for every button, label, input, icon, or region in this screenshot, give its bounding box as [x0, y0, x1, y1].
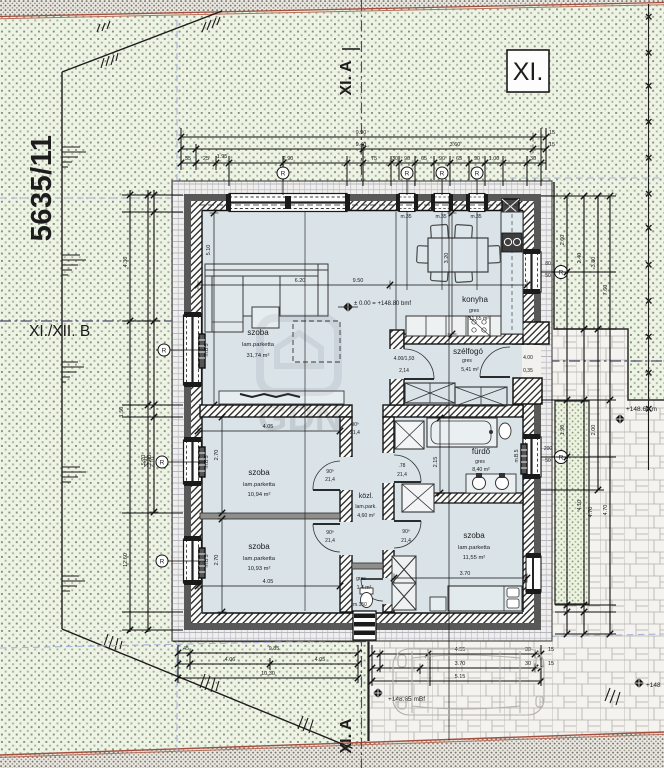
svg-text:3.80: 3.80 [591, 257, 597, 268]
svg-text:+148.60 m: +148.60 m [626, 406, 657, 413]
svg-text:lam.park.: lam.park. [355, 504, 376, 510]
svg-text:lam.parketta: lam.parketta [458, 545, 491, 551]
svg-text:90º: 90º [326, 530, 334, 536]
svg-text:2.15: 2.15 [433, 457, 439, 468]
svg-text:12.60: 12.60 [123, 553, 129, 567]
svg-text:15: 15 [548, 647, 554, 653]
svg-text:21,4: 21,4 [397, 472, 407, 478]
svg-text:30: 30 [530, 156, 536, 162]
svg-text:8,40 m²: 8,40 m² [472, 467, 490, 473]
svg-text:3.70: 3.70 [455, 661, 466, 667]
svg-text:4.55: 4.55 [455, 647, 466, 653]
svg-text:szoba: szoba [247, 328, 269, 337]
svg-text:25: 25 [203, 156, 209, 162]
svg-text:200: 200 [544, 446, 553, 452]
svg-text:5,41 m²: 5,41 m² [461, 367, 479, 373]
svg-text:31,74 m²: 31,74 m² [247, 353, 270, 359]
svg-text:15: 15 [548, 661, 554, 667]
svg-text:m.B.5: m.B.5 [204, 455, 210, 468]
svg-text:2.90: 2.90 [283, 156, 294, 162]
svg-text:65: 65 [456, 156, 462, 162]
svg-text:90º: 90º [402, 529, 410, 535]
svg-text:R: R [475, 171, 480, 178]
svg-text:m.B.5: m.B.5 [204, 343, 210, 356]
svg-text:R: R [162, 348, 167, 355]
svg-text:gres: gres [469, 308, 479, 314]
svg-text:GDN: GDN [258, 397, 342, 439]
svg-text:9.50: 9.50 [353, 278, 364, 284]
svg-text:55: 55 [185, 156, 191, 162]
svg-text:R: R [559, 270, 564, 277]
svg-text:1.50: 1.50 [119, 407, 125, 418]
svg-text:4.00/1,93: 4.00/1,93 [394, 356, 415, 362]
svg-text:10.30: 10.30 [261, 671, 275, 677]
svg-text:2,14: 2,14 [399, 368, 409, 374]
svg-text:2.40: 2.40 [577, 253, 583, 264]
svg-text:90: 90 [404, 156, 410, 162]
svg-text:szoba: szoba [248, 468, 270, 477]
svg-text:5.15: 5.15 [455, 674, 466, 680]
svg-text:90º: 90º [351, 422, 359, 428]
svg-text:10,93 m²: 10,93 m² [248, 566, 271, 572]
svg-text:90º: 90º [326, 469, 334, 475]
svg-text:1.90: 1.90 [560, 425, 566, 436]
svg-text:4.06: 4.06 [225, 657, 236, 663]
svg-text:9.90: 9.90 [356, 130, 367, 136]
svg-text:11,55 m²: 11,55 m² [463, 555, 486, 561]
svg-text:2.40: 2.40 [147, 455, 153, 466]
svg-text:4,60 m²: 4,60 m² [357, 513, 375, 519]
svg-text:közl.: közl. [359, 493, 373, 500]
svg-text:1.95: 1.95 [217, 154, 228, 160]
svg-text:lam.parketta: lam.parketta [242, 342, 275, 348]
svg-text:XI. A: XI. A [338, 718, 355, 753]
svg-text:15: 15 [549, 130, 555, 136]
svg-text:R: R [440, 171, 445, 178]
svg-text:50: 50 [545, 458, 551, 464]
svg-text:80: 80 [545, 261, 551, 267]
svg-text:90: 90 [474, 156, 480, 162]
svg-text:0,35: 0,35 [523, 368, 533, 374]
svg-text:2.00: 2.00 [591, 425, 597, 436]
svg-text:4.70: 4.70 [603, 505, 609, 516]
svg-text:30: 30 [525, 661, 531, 667]
svg-text:10,94 m²: 10,94 m² [248, 492, 271, 498]
svg-text:konyha: konyha [462, 295, 488, 304]
svg-text:XI./XII. B: XI./XII. B [29, 323, 90, 340]
svg-text:gres: gres [356, 576, 366, 582]
svg-text:R: R [160, 559, 165, 566]
svg-text:lam.parketta: lam.parketta [243, 482, 276, 488]
svg-text:45: 45 [183, 646, 189, 652]
svg-text:.78: .78 [399, 463, 406, 469]
svg-text:3.20: 3.20 [444, 253, 450, 264]
svg-text:5.10: 5.10 [206, 245, 212, 256]
svg-text:+148: +148 [646, 682, 661, 689]
svg-text:4.00: 4.00 [523, 355, 533, 361]
svg-text:9.85: 9.85 [269, 646, 280, 652]
svg-text:R: R [559, 455, 564, 462]
svg-text:m.35: m.35 [400, 214, 411, 220]
svg-text:21,4: 21,4 [350, 430, 360, 436]
svg-text:2.70: 2.70 [214, 555, 220, 566]
svg-text:lam.parketta: lam.parketta [243, 556, 276, 562]
svg-text:30: 30 [525, 647, 531, 653]
svg-text:szoba: szoba [248, 542, 270, 551]
svg-text:szoba: szoba [463, 531, 485, 540]
svg-text:4.05: 4.05 [263, 579, 274, 585]
svg-text:75: 75 [371, 156, 377, 162]
svg-text:m.150: m.150 [353, 602, 367, 608]
svg-text:21,4: 21,4 [401, 538, 411, 544]
svg-text:R: R [405, 171, 410, 178]
svg-text:4.70: 4.70 [588, 507, 594, 518]
svg-text:fürdő: fürdő [472, 447, 491, 456]
svg-text:± 0.00 = +148.80 bmf: ± 0.00 = +148.80 bmf [354, 301, 411, 307]
svg-text:XI. A: XI. A [338, 60, 355, 95]
svg-text:4.10: 4.10 [577, 500, 583, 511]
svg-text:XI.: XI. [513, 58, 544, 86]
svg-text:1,4 m²: 1,4 m² [357, 585, 372, 591]
svg-text:szélfogó: szélfogó [453, 347, 483, 356]
svg-text:4.36: 4.36 [123, 257, 129, 268]
svg-text:21,4: 21,4 [325, 477, 335, 483]
svg-text:90: 90 [439, 156, 445, 162]
svg-text:1.00: 1.00 [489, 156, 500, 162]
svg-text:7.60: 7.60 [603, 285, 609, 296]
svg-text:m.35: m.35 [435, 214, 446, 220]
svg-text:2.70: 2.70 [214, 450, 220, 461]
svg-text:m.B.5: m.B.5 [204, 554, 210, 567]
svg-text:50: 50 [545, 273, 551, 279]
svg-text:gres: gres [462, 358, 472, 364]
svg-text:65: 65 [421, 156, 427, 162]
svg-text:m.35: m.35 [470, 214, 481, 220]
svg-text:4.05: 4.05 [263, 424, 274, 430]
svg-text:gres: gres [475, 459, 485, 465]
svg-text:R: R [160, 460, 165, 467]
svg-text:15: 15 [549, 142, 555, 148]
svg-text:30: 30 [392, 156, 398, 162]
svg-text:3.60: 3.60 [450, 142, 461, 148]
svg-text:9.40: 9.40 [356, 142, 367, 148]
svg-text:11,65 m²: 11,65 m² [469, 316, 489, 322]
svg-text:4.05: 4.05 [315, 657, 326, 663]
svg-text:21,4: 21,4 [325, 538, 335, 544]
svg-text:6.20: 6.20 [295, 278, 306, 284]
svg-text:3.70: 3.70 [460, 571, 471, 577]
svg-text:R: R [281, 171, 286, 178]
svg-text:2.60: 2.60 [560, 235, 566, 246]
svg-text:m.B.5: m.B.5 [514, 449, 520, 462]
svg-text:5635/11: 5635/11 [26, 135, 58, 242]
